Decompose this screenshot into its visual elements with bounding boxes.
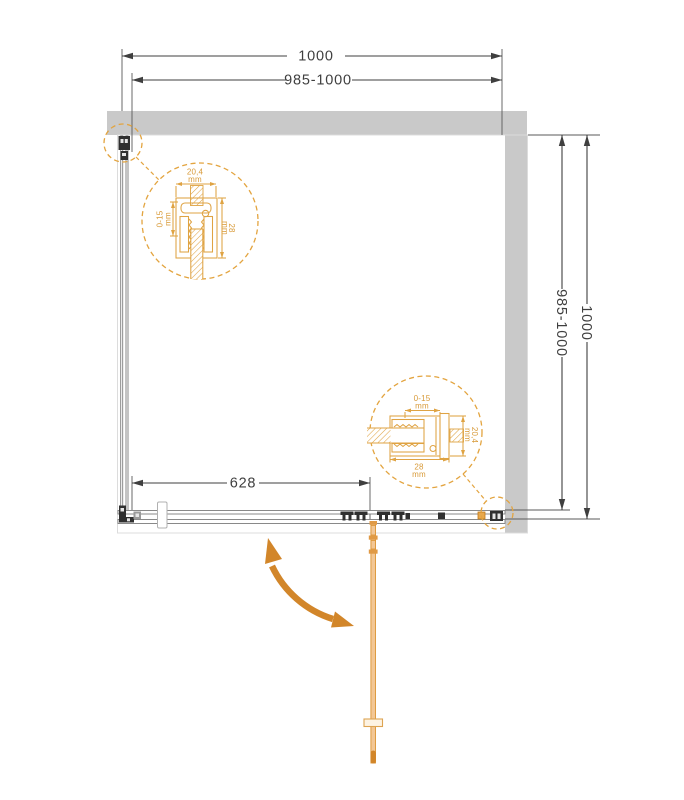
wall-clamp-right <box>490 511 503 521</box>
arrowhead-top <box>559 135 565 146</box>
dim-door-width-label: 628 <box>230 476 257 492</box>
detail-side-dim-adjust: 0-15 mm <box>405 394 440 418</box>
detail-top-adjust-unit: mm <box>164 212 173 226</box>
detail-side-dim-depth: 28 mm <box>390 457 449 480</box>
arrowhead-left <box>132 480 143 486</box>
plan-svg: 1000 985-1000 985-1000 1000 628 <box>0 0 684 800</box>
detail-wall-profile-top: 20,4 mm 0-15 mm 28 mm <box>156 168 237 280</box>
top-wall <box>107 111 527 135</box>
detail-top-depth-unit: mm <box>221 221 230 235</box>
dimension-door-width: 628 <box>132 476 370 524</box>
detail-side-adjust-unit: mm <box>415 402 429 411</box>
front-panel <box>118 511 505 524</box>
dim-top-adjustable-label: 985-1000 <box>284 73 352 89</box>
door-handle <box>364 719 383 727</box>
dim-top-outer-label: 1000 <box>298 49 333 65</box>
arrowhead-right <box>491 53 502 59</box>
door-pivot-hinge <box>369 521 378 554</box>
callout-leader-top <box>136 157 159 180</box>
detail-top-dim-depth: 28 mm <box>218 198 236 258</box>
detail-wall-profile-side: 0-15 mm 28 mm 20,4 mm <box>367 394 479 479</box>
door-bottom-seal <box>371 751 377 764</box>
door-open <box>364 521 383 764</box>
detail-side-width-unit: mm <box>463 428 472 442</box>
arrowhead-right <box>491 77 502 83</box>
detail-top-width-unit: mm <box>188 175 202 184</box>
glass-pane-section <box>367 429 391 443</box>
dim-side-adjustable-label: 985-1000 <box>553 289 569 357</box>
tray-outline <box>118 135 528 533</box>
detail-side-depth-unit: mm <box>412 470 426 479</box>
swing-arrowhead-up <box>265 538 282 564</box>
side-wall <box>505 111 527 533</box>
arrowhead-right <box>359 480 370 486</box>
arrowhead-bottom <box>559 499 565 510</box>
swing-arrowhead-right <box>331 612 354 628</box>
door-swing-arrow <box>265 538 354 628</box>
screw-hole <box>430 446 436 452</box>
dim-side-outer-label: 1000 <box>578 305 594 340</box>
arrowhead-left <box>132 77 143 83</box>
arrowhead-top <box>584 135 590 146</box>
shower-enclosure-plan-drawing: 1000 985-1000 985-1000 1000 628 <box>0 0 684 800</box>
arrowhead-left <box>122 53 133 59</box>
detail-top-dim-adjust: 0-15 mm <box>156 202 179 236</box>
fixed-panel-left <box>121 136 128 511</box>
arrowhead-bottom <box>584 508 590 519</box>
panel-support-bracket <box>158 502 168 528</box>
callout-leader-side <box>463 474 486 501</box>
wall-anchor-section <box>450 429 464 442</box>
